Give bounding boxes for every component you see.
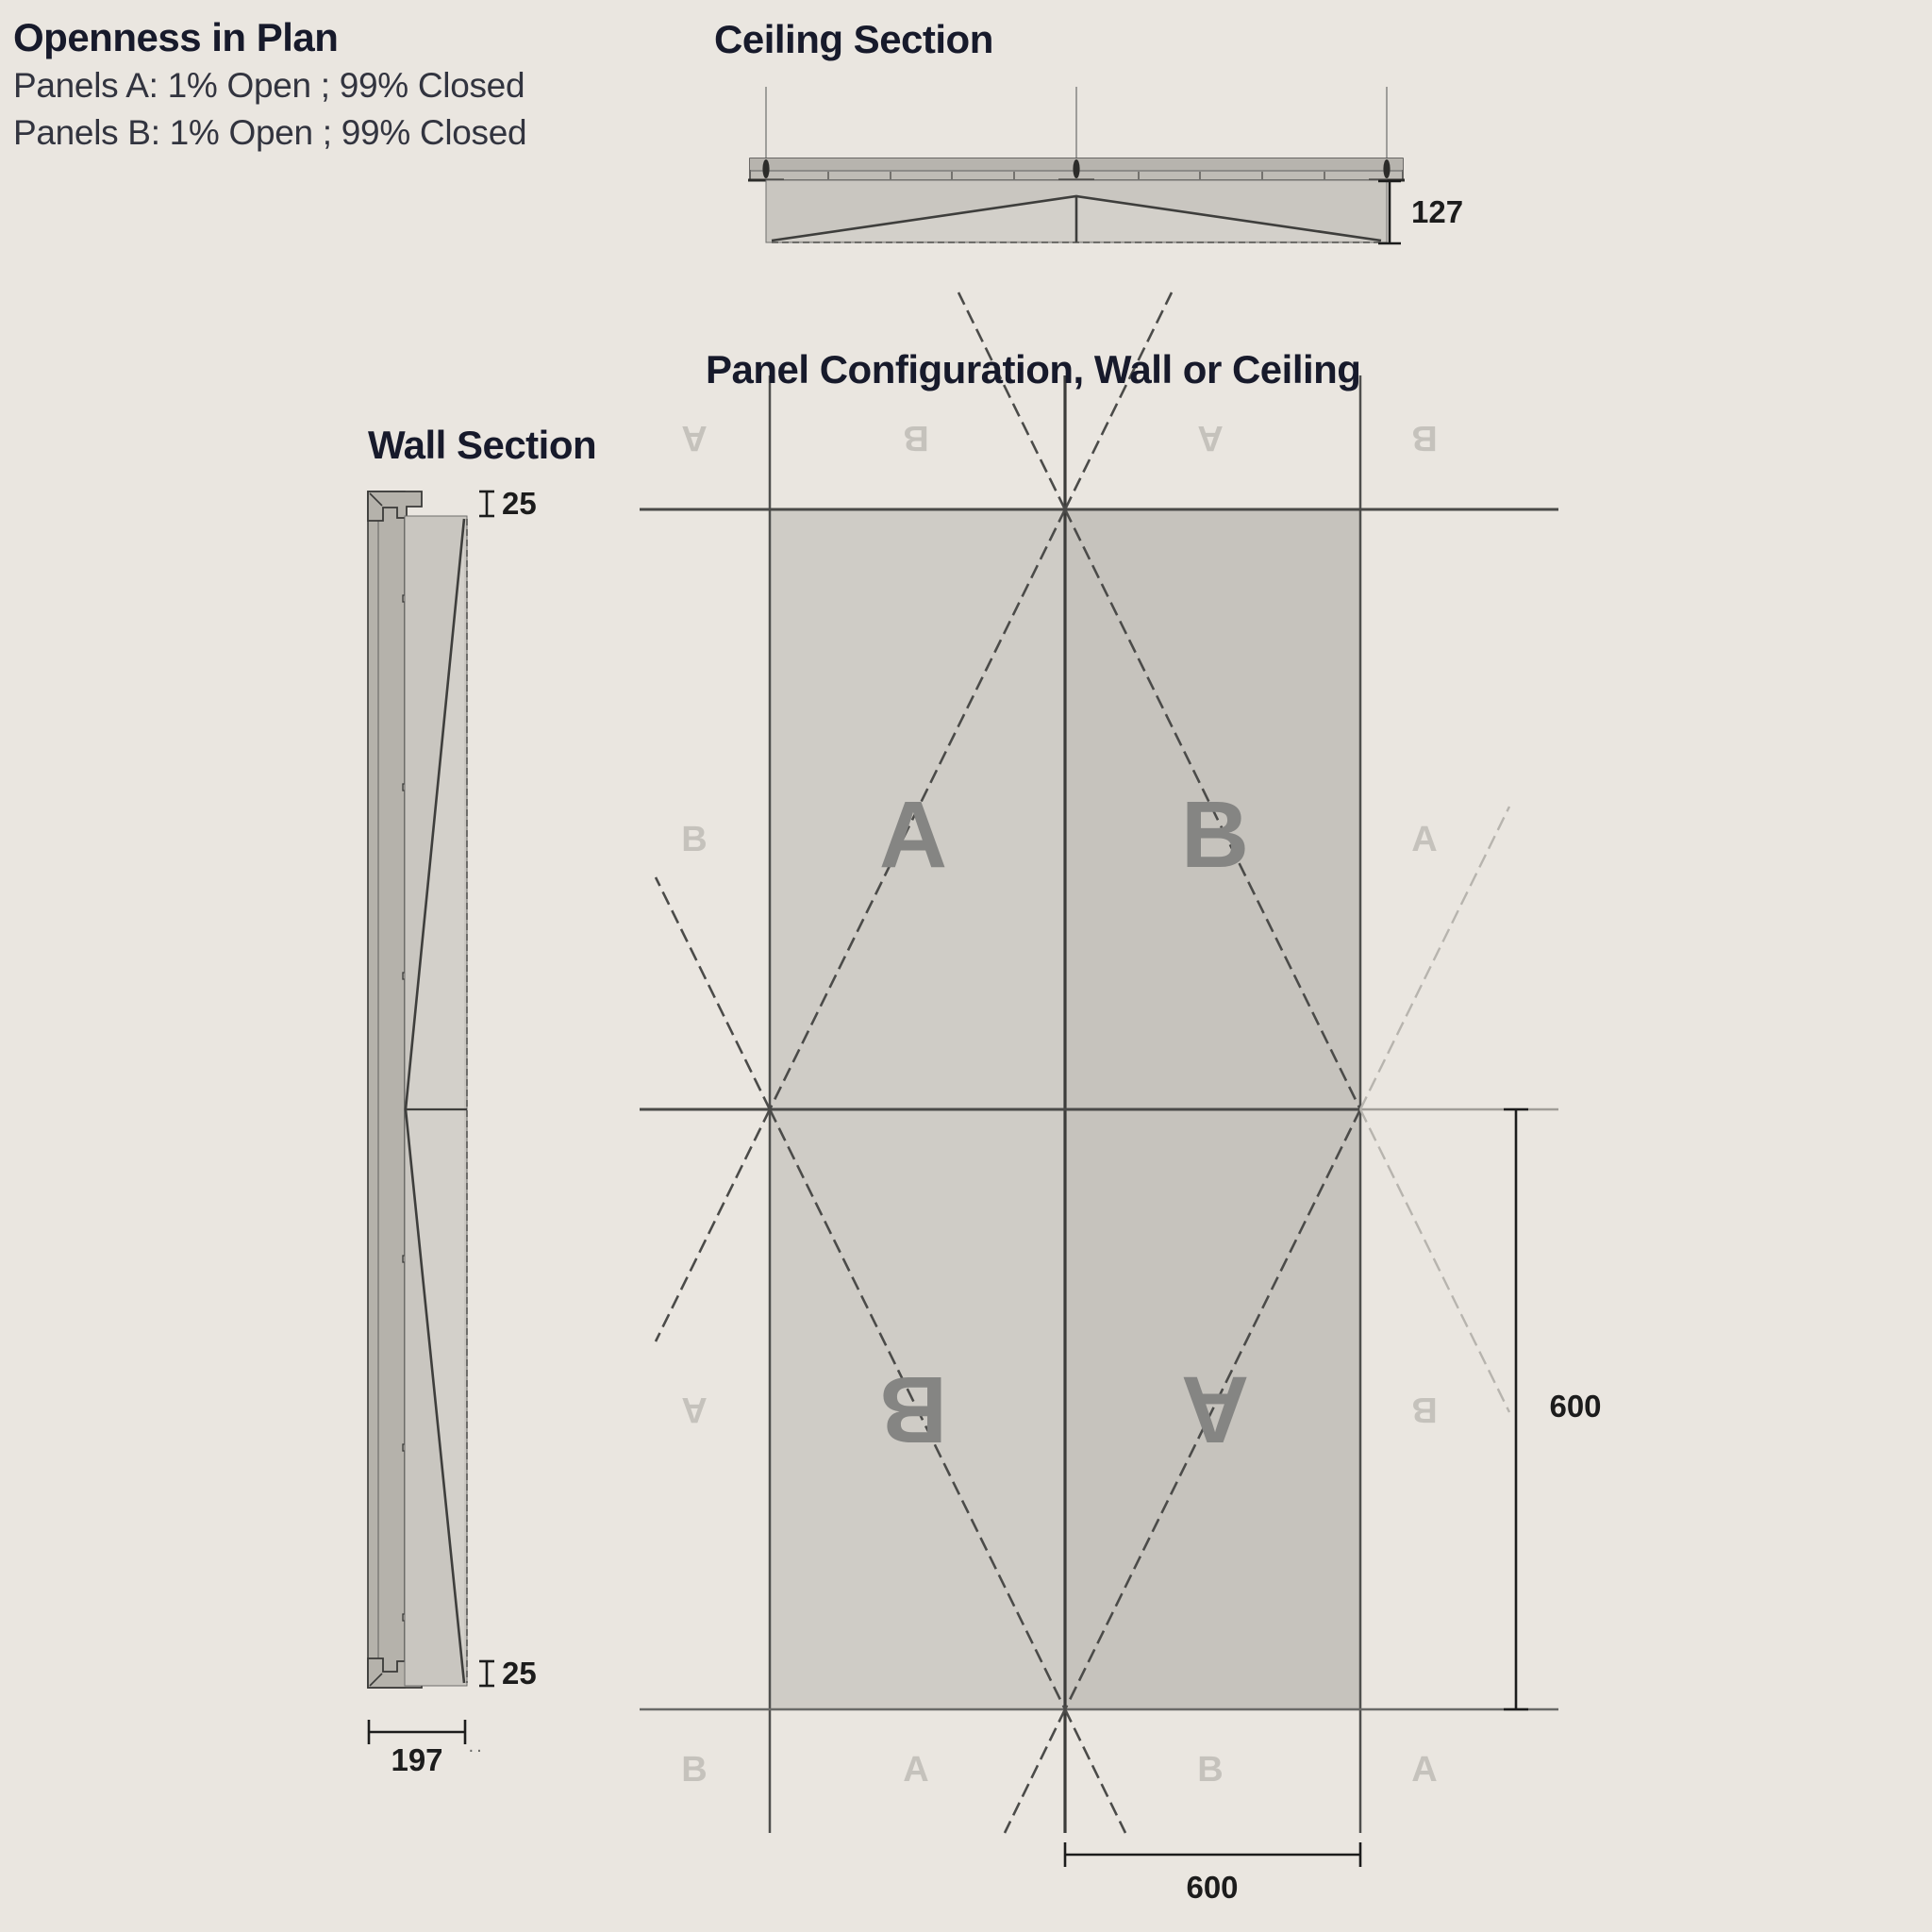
ceiling-depth-dimension-label: 127 [1411, 194, 1463, 230]
sheet-drawing [0, 0, 1932, 1932]
wall-rail [368, 491, 405, 1688]
wall-section-drawing [368, 491, 494, 1744]
panel-configuration-drawing [640, 292, 1558, 1867]
width-dimension-line [1065, 1842, 1360, 1867]
panel-letter-b: B [1181, 788, 1249, 882]
architectural-sheet: Openness in Plan Panels A: 1% Open ; 99%… [0, 0, 1932, 1932]
wall-width-dimension-line [369, 1720, 465, 1744]
hanger-wires [766, 87, 1387, 160]
panel-letter-b: B [903, 420, 928, 456]
wall-width-dimension-dots: ·· [468, 1740, 484, 1762]
wall-edge-dimension-bottom-label: 25 [502, 1656, 537, 1691]
wall-width-dimension-label: 197 [391, 1742, 442, 1778]
panel-letter-b: B [1197, 1752, 1223, 1788]
panel-letter-a: A [879, 788, 947, 882]
ceiling-section-title: Ceiling Section [714, 17, 993, 62]
panel-letter-a: A [681, 420, 707, 456]
panel-letter-b: B [681, 822, 707, 858]
panel-letter-a: A [1197, 420, 1223, 456]
wall-edge-dimension-top-label: 25 [502, 486, 537, 522]
panel-letter-b: B [681, 1752, 707, 1788]
panel-letter-b: B [879, 1362, 947, 1457]
panel-width-dimension-label: 600 [1186, 1870, 1238, 1906]
panel-letter-a: A [903, 1752, 928, 1788]
openness-title: Openness in Plan [13, 15, 338, 60]
wall-section-title: Wall Section [368, 423, 596, 468]
panel-letter-b: B [1411, 420, 1437, 456]
panel-letter-a: A [1411, 1752, 1437, 1788]
panel-height-dimension-label: 600 [1549, 1389, 1601, 1424]
wall-edge-dimension-top [479, 491, 494, 516]
panel-letter-a: A [681, 1391, 707, 1427]
openness-panels-b: Panels B: 1% Open ; 99% Closed [13, 113, 526, 153]
panel-letter-a: A [1181, 1362, 1249, 1457]
panel-letter-b: B [1411, 1391, 1437, 1427]
panel-configuration-title: Panel Configuration, Wall or Ceiling [706, 347, 1360, 392]
ceiling-section-drawing [748, 87, 1405, 243]
panel-letter-a: A [1411, 822, 1437, 858]
openness-panels-a: Panels A: 1% Open ; 99% Closed [13, 66, 525, 106]
wall-edge-dimension-bottom [479, 1661, 494, 1686]
